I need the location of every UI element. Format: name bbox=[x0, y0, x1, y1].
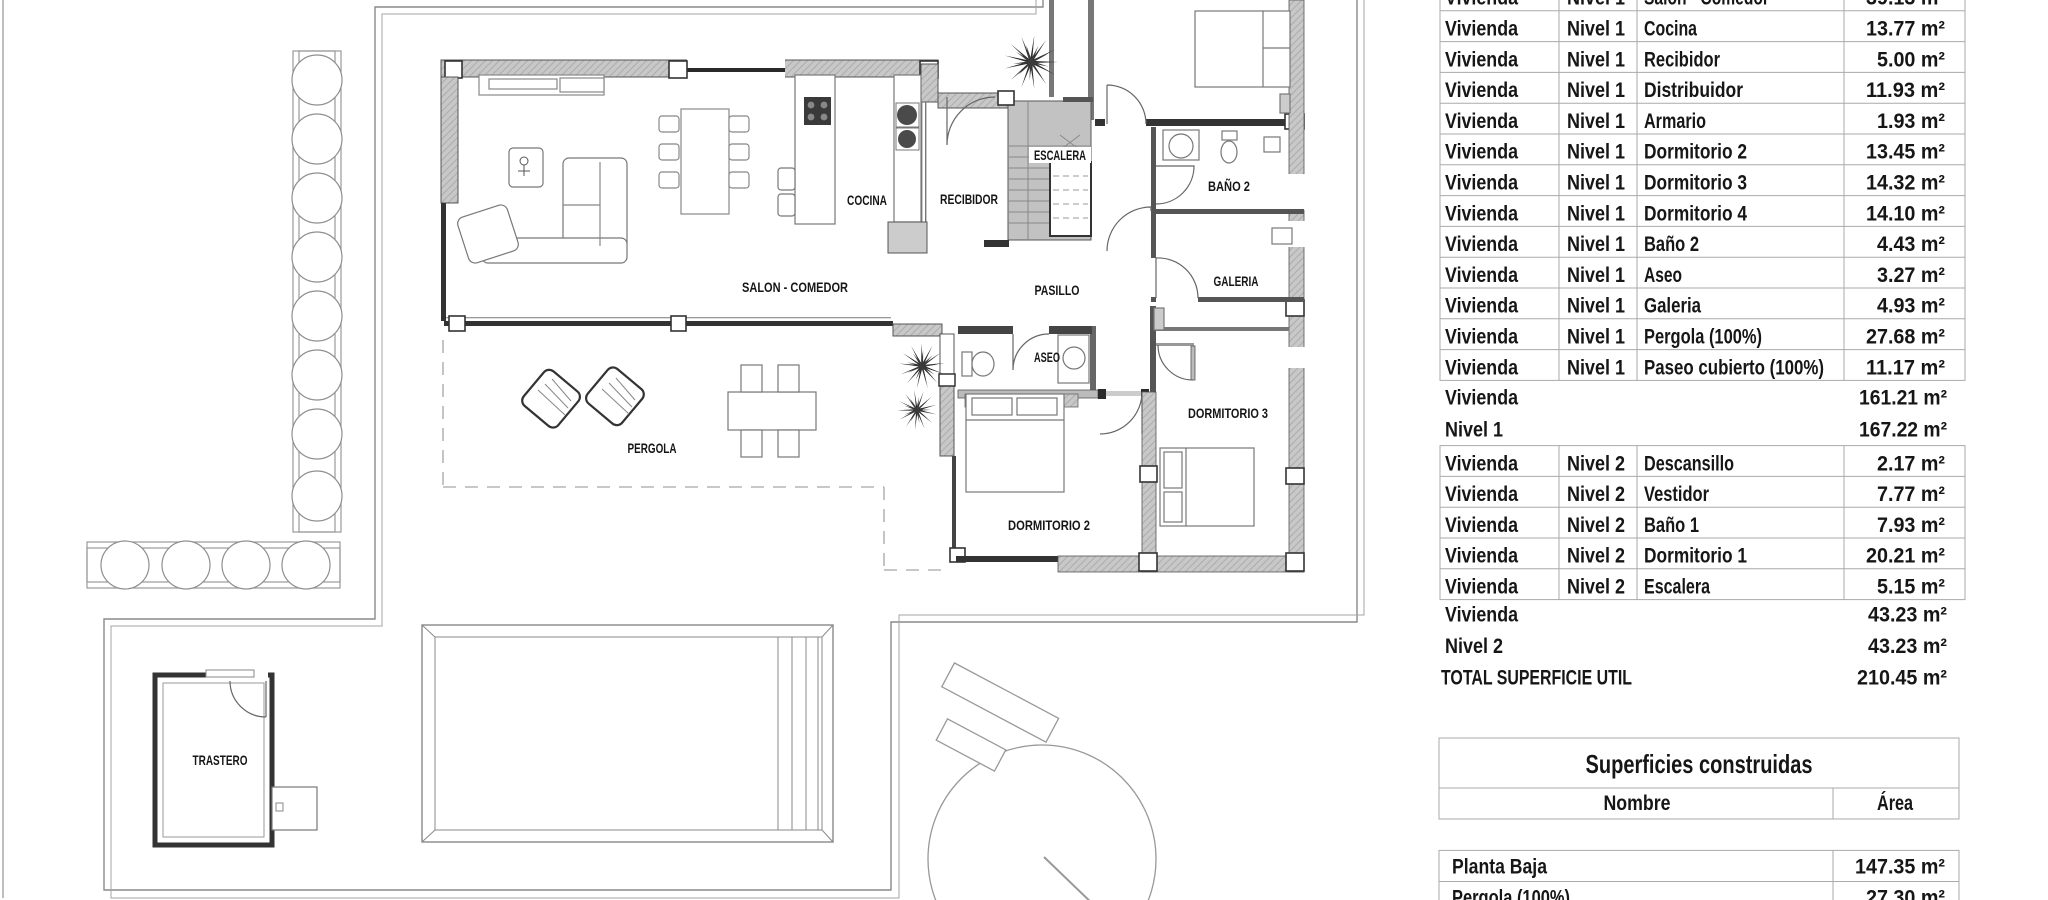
svg-text:5.00 m²: 5.00 m² bbox=[1877, 48, 1945, 71]
svg-text:Dormitorio 3: Dormitorio 3 bbox=[1644, 172, 1747, 195]
svg-text:7.93 m²: 7.93 m² bbox=[1877, 514, 1945, 537]
svg-text:Vivienda: Vivienda bbox=[1445, 514, 1518, 537]
svg-text:Nivel 2: Nivel 2 bbox=[1567, 452, 1625, 475]
svg-text:39.13 m²: 39.13 m² bbox=[1866, 0, 1945, 10]
svg-text:Nivel 1: Nivel 1 bbox=[1567, 233, 1625, 256]
svg-text:Vivienda: Vivienda bbox=[1445, 202, 1518, 225]
svg-text:7.77 m²: 7.77 m² bbox=[1877, 483, 1945, 506]
svg-text:Dormitorio 1: Dormitorio 1 bbox=[1644, 545, 1747, 568]
svg-text:Vivienda: Vivienda bbox=[1445, 264, 1518, 287]
svg-text:Vestidor: Vestidor bbox=[1644, 483, 1709, 506]
svg-text:Nivel 1: Nivel 1 bbox=[1567, 295, 1625, 318]
svg-text:20.21 m²: 20.21 m² bbox=[1866, 545, 1945, 568]
svg-text:Planta Baja: Planta Baja bbox=[1452, 856, 1547, 879]
svg-text:Nivel 2: Nivel 2 bbox=[1567, 483, 1625, 506]
svg-text:4.43 m²: 4.43 m² bbox=[1877, 233, 1945, 256]
svg-text:Vivienda: Vivienda bbox=[1445, 295, 1518, 318]
svg-text:Dormitorio 2: Dormitorio 2 bbox=[1644, 141, 1747, 164]
svg-text:Salon - Comedor: Salon - Comedor bbox=[1644, 0, 1769, 10]
svg-text:43.23 m²: 43.23 m² bbox=[1868, 604, 1947, 627]
svg-text:DORMITORIO 2: DORMITORIO 2 bbox=[1008, 517, 1090, 533]
svg-text:Vivienda: Vivienda bbox=[1445, 0, 1518, 10]
svg-text:27.30 m²: 27.30 m² bbox=[1866, 887, 1945, 900]
svg-text:Pergola (100%): Pergola (100%) bbox=[1644, 326, 1762, 349]
svg-text:Nivel 1: Nivel 1 bbox=[1567, 356, 1625, 379]
svg-text:11.93 m²: 11.93 m² bbox=[1866, 79, 1945, 102]
svg-text:Pergola (100%): Pergola (100%) bbox=[1452, 887, 1570, 900]
svg-text:Nombre: Nombre bbox=[1604, 792, 1671, 815]
svg-text:Nivel 1: Nivel 1 bbox=[1445, 419, 1503, 442]
svg-text:Vivienda: Vivienda bbox=[1445, 604, 1518, 627]
svg-text:RECIBIDOR: RECIBIDOR bbox=[940, 191, 998, 207]
svg-text:COCINA: COCINA bbox=[847, 192, 887, 208]
svg-text:3.27 m²: 3.27 m² bbox=[1877, 264, 1945, 287]
svg-text:Nivel 2: Nivel 2 bbox=[1445, 635, 1503, 658]
svg-text:161.21 m²: 161.21 m² bbox=[1859, 387, 1947, 410]
svg-text:43.23 m²: 43.23 m² bbox=[1868, 635, 1947, 658]
svg-text:Vivienda: Vivienda bbox=[1445, 110, 1518, 133]
svg-text:TRASTERO: TRASTERO bbox=[193, 752, 248, 768]
svg-text:Vivienda: Vivienda bbox=[1445, 576, 1518, 599]
svg-text:Descansillo: Descansillo bbox=[1644, 452, 1734, 475]
svg-text:1.93 m²: 1.93 m² bbox=[1877, 110, 1945, 133]
svg-text:Nivel 1: Nivel 1 bbox=[1567, 110, 1625, 133]
svg-text:Vivienda: Vivienda bbox=[1445, 545, 1518, 568]
svg-text:BAÑO 2: BAÑO 2 bbox=[1208, 177, 1250, 194]
svg-text:Vivienda: Vivienda bbox=[1445, 79, 1518, 102]
svg-text:14.10 m²: 14.10 m² bbox=[1866, 202, 1945, 225]
svg-text:Nivel 1: Nivel 1 bbox=[1567, 18, 1625, 41]
svg-text:Nivel 2: Nivel 2 bbox=[1567, 576, 1625, 599]
svg-text:Nivel 1: Nivel 1 bbox=[1567, 326, 1625, 349]
svg-text:4.93 m²: 4.93 m² bbox=[1877, 295, 1945, 318]
svg-text:ASEO: ASEO bbox=[1034, 349, 1060, 365]
svg-text:Baño 1: Baño 1 bbox=[1644, 514, 1699, 537]
svg-text:Vivienda: Vivienda bbox=[1445, 233, 1518, 256]
svg-text:Vivienda: Vivienda bbox=[1445, 172, 1518, 195]
svg-text:Nivel 1: Nivel 1 bbox=[1567, 141, 1625, 164]
svg-text:Área: Área bbox=[1877, 792, 1913, 815]
svg-text:Aseo: Aseo bbox=[1644, 264, 1682, 287]
svg-text:Vivienda: Vivienda bbox=[1445, 387, 1518, 410]
svg-text:Dormitorio 4: Dormitorio 4 bbox=[1644, 202, 1747, 225]
svg-text:Nivel 1: Nivel 1 bbox=[1567, 172, 1625, 195]
svg-text:Vivienda: Vivienda bbox=[1445, 141, 1518, 164]
svg-text:ESCALERA: ESCALERA bbox=[1034, 147, 1086, 163]
svg-text:Vivienda: Vivienda bbox=[1445, 483, 1518, 506]
svg-text:Baño 2: Baño 2 bbox=[1644, 233, 1699, 256]
svg-text:2.17 m²: 2.17 m² bbox=[1877, 452, 1945, 475]
svg-text:167.22 m²: 167.22 m² bbox=[1859, 419, 1947, 442]
svg-text:Nivel 2: Nivel 2 bbox=[1567, 514, 1625, 537]
svg-text:Vivienda: Vivienda bbox=[1445, 452, 1518, 475]
svg-text:Armario: Armario bbox=[1644, 110, 1706, 133]
svg-text:14.32 m²: 14.32 m² bbox=[1866, 172, 1945, 195]
svg-text:Paseo cubierto (100%): Paseo cubierto (100%) bbox=[1644, 356, 1824, 379]
svg-text:TOTAL SUPERFICIE UTIL: TOTAL SUPERFICIE UTIL bbox=[1441, 667, 1632, 690]
svg-text:Nivel 1: Nivel 1 bbox=[1567, 202, 1625, 225]
svg-text:13.77 m²: 13.77 m² bbox=[1866, 18, 1945, 41]
svg-text:210.45 m²: 210.45 m² bbox=[1857, 667, 1947, 690]
svg-text:Cocina: Cocina bbox=[1644, 18, 1697, 41]
svg-text:Vivienda: Vivienda bbox=[1445, 356, 1518, 379]
svg-text:Nivel 1: Nivel 1 bbox=[1567, 264, 1625, 287]
svg-text:DORMITORIO 3: DORMITORIO 3 bbox=[1188, 405, 1268, 421]
svg-text:Vivienda: Vivienda bbox=[1445, 48, 1518, 71]
svg-text:Superficies construidas: Superficies construidas bbox=[1586, 749, 1813, 779]
svg-text:PERGOLA: PERGOLA bbox=[628, 440, 677, 456]
svg-text:13.45 m²: 13.45 m² bbox=[1866, 141, 1945, 164]
svg-text:11.17 m²: 11.17 m² bbox=[1866, 356, 1945, 379]
svg-text:147.35 m²: 147.35 m² bbox=[1855, 856, 1945, 879]
svg-text:Vivienda: Vivienda bbox=[1445, 18, 1518, 41]
svg-text:27.68 m²: 27.68 m² bbox=[1866, 326, 1945, 349]
svg-text:Recibidor: Recibidor bbox=[1644, 48, 1720, 71]
svg-text:Vivienda: Vivienda bbox=[1445, 326, 1518, 349]
svg-text:PASILLO: PASILLO bbox=[1035, 282, 1080, 298]
svg-text:Nivel 1: Nivel 1 bbox=[1567, 79, 1625, 102]
svg-text:Nivel 2: Nivel 2 bbox=[1567, 545, 1625, 568]
svg-text:Nivel 1: Nivel 1 bbox=[1567, 48, 1625, 71]
svg-text:Nivel 1: Nivel 1 bbox=[1567, 0, 1625, 10]
svg-text:5.15 m²: 5.15 m² bbox=[1877, 576, 1945, 599]
svg-text:Escalera: Escalera bbox=[1644, 576, 1710, 599]
svg-text:GALERIA: GALERIA bbox=[1214, 273, 1259, 289]
svg-text:Galeria: Galeria bbox=[1644, 295, 1701, 318]
svg-text:Distribuidor: Distribuidor bbox=[1644, 79, 1743, 102]
svg-text:SALON - COMEDOR: SALON - COMEDOR bbox=[742, 279, 848, 295]
